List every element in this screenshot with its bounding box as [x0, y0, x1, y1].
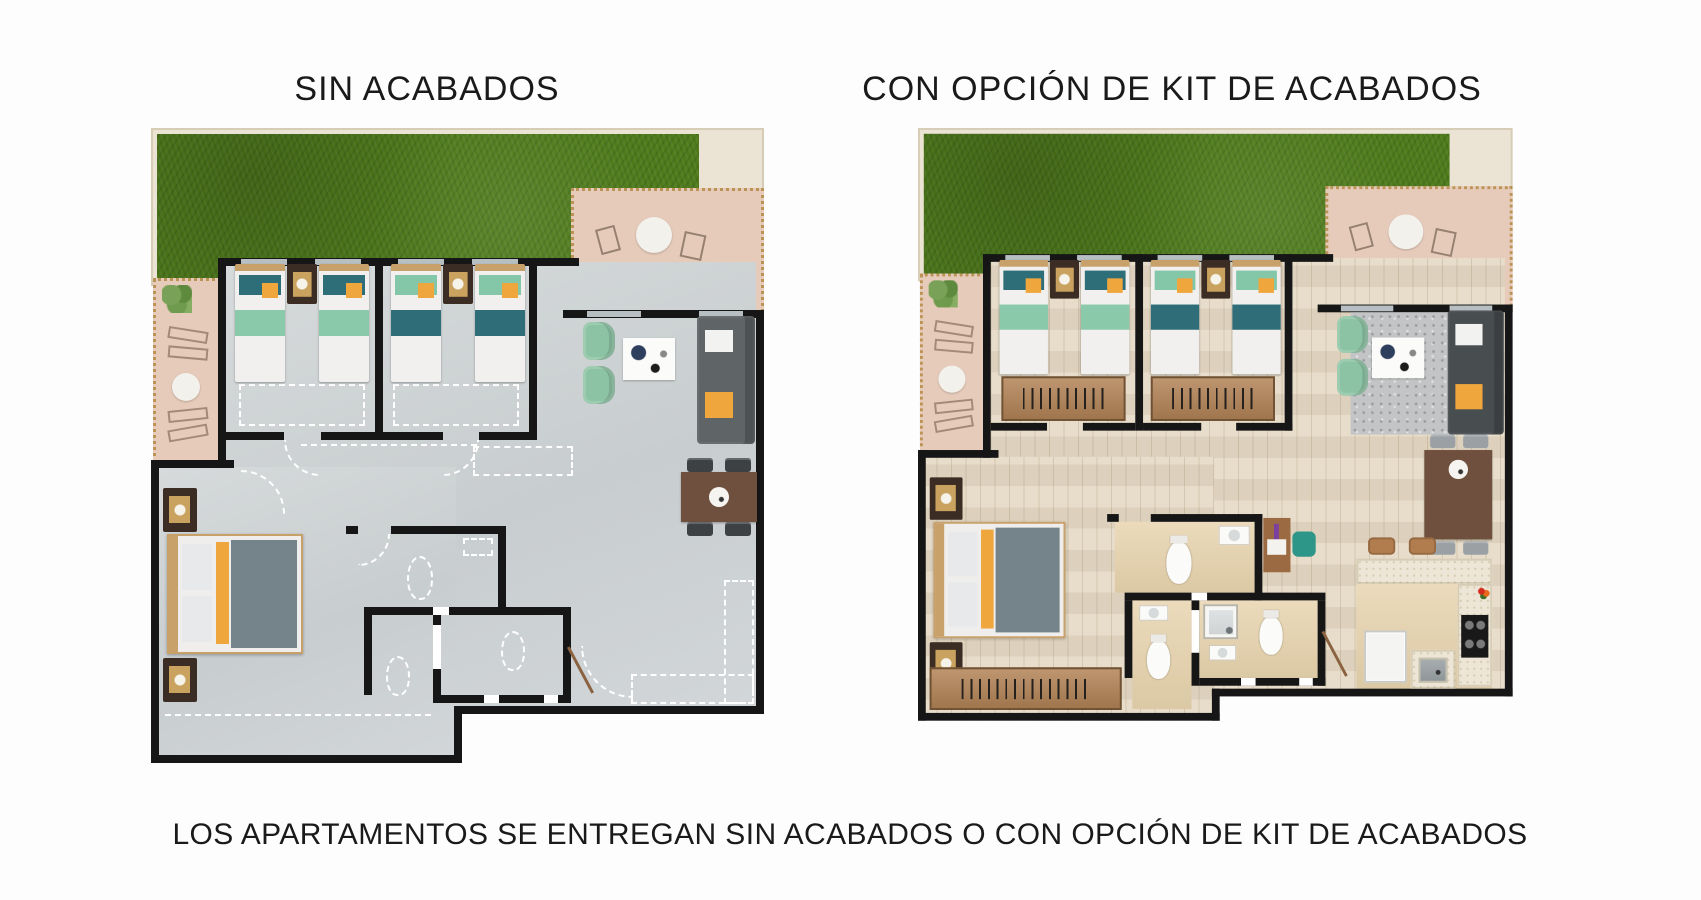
door-opening: [544, 695, 558, 703]
sofa: [1448, 310, 1504, 434]
armchair: [1337, 359, 1368, 396]
hallway-outline-dashed: [301, 444, 477, 446]
bar-stool: [1409, 537, 1436, 554]
toilet-outline-dashed: [386, 656, 410, 696]
door-opening: [1299, 678, 1313, 686]
wardrobe: [930, 667, 1122, 710]
wall-segment: [151, 755, 462, 763]
wall-segment: [918, 450, 999, 458]
door-opening: [1192, 610, 1200, 653]
stove: [1461, 615, 1488, 658]
wall-segment: [391, 526, 506, 534]
armchair: [583, 366, 615, 404]
double-bed: [934, 522, 1066, 638]
door-opening: [484, 695, 499, 703]
wall-segment: [1236, 423, 1292, 431]
nightstand: [163, 488, 197, 532]
kitchen-sink: [1419, 658, 1448, 683]
desk-chair: [1292, 532, 1315, 557]
floorplan-sin-acabados: [151, 128, 764, 764]
twin-bed: [999, 260, 1048, 374]
twin-bed: [475, 264, 525, 382]
desk: [1263, 518, 1290, 572]
toilet-outline-dashed: [501, 631, 525, 671]
wall-segment: [529, 258, 537, 440]
dining-chair: [687, 522, 713, 536]
toilet: [1166, 541, 1191, 584]
plate: [1449, 460, 1468, 479]
dining-chair: [1463, 435, 1488, 449]
nightstand: [443, 264, 473, 304]
patio-chair: [595, 225, 621, 255]
wall-segment: [498, 526, 506, 615]
wall-segment: [1151, 514, 1263, 522]
wall-segment: [454, 706, 462, 763]
wall-segment: [563, 615, 571, 703]
dining-chair: [687, 458, 713, 472]
twin-bed: [235, 264, 285, 382]
lounge-chair: [167, 424, 208, 443]
wall-segment: [226, 432, 284, 440]
plate: [709, 487, 729, 507]
dining-table: [681, 472, 757, 522]
lounge-chair: [167, 326, 208, 344]
wall-segment: [918, 713, 1220, 721]
wall-segment: [1318, 600, 1326, 685]
plant: [162, 285, 192, 313]
floorplan-kit-de-acabados: [918, 128, 1513, 745]
window: [1341, 306, 1393, 312]
patio-chair: [680, 231, 707, 261]
nightstand: [287, 264, 317, 304]
wardrobe: [1151, 376, 1275, 421]
wall-segment: [383, 432, 443, 440]
wall-segment: [375, 258, 383, 440]
dining-chair: [725, 522, 751, 536]
wall-segment: [1135, 254, 1143, 431]
sofa: [697, 316, 755, 444]
bathroom-sink: [1209, 645, 1236, 661]
armchair: [1337, 316, 1368, 353]
wardrobe: [1001, 376, 1125, 421]
patio-table: [172, 373, 200, 401]
wall-segment: [991, 423, 1047, 431]
wall-segment: [983, 254, 991, 458]
bathroom-sink: [1139, 605, 1168, 621]
closet-outline-dashed: [393, 384, 519, 426]
wall-segment: [151, 460, 234, 468]
flower-pot: [1477, 586, 1491, 600]
wall-segment: [1083, 423, 1135, 431]
wall-segment: [1285, 254, 1293, 431]
wall-segment: [454, 706, 764, 714]
nightstand: [1201, 260, 1230, 299]
double-bed: [167, 534, 303, 654]
window: [587, 311, 641, 317]
door-opening: [433, 625, 441, 669]
wall-segment: [756, 310, 764, 714]
patio-chair: [1431, 228, 1457, 257]
wall-segment: [346, 526, 358, 534]
twin-bed: [1151, 260, 1200, 374]
lounge-chair: [168, 345, 209, 360]
right-plan-title: CON OPCIÓN DE KIT DE ACABADOS: [862, 70, 1482, 109]
wall-segment: [1125, 593, 1326, 601]
bottom-caption: LOS APARTAMENTOS SE ENTREGAN SIN ACABADO…: [172, 818, 1527, 852]
sink-outline-dashed: [463, 538, 493, 556]
patio-table: [636, 217, 672, 253]
twin-bed: [391, 264, 441, 382]
fridge: [1364, 630, 1407, 682]
lounge-chair: [934, 339, 974, 354]
patio-chair: [1349, 222, 1374, 251]
wall-segment: [1255, 514, 1263, 600]
left-plan-title: SIN ACABADOS: [294, 70, 559, 109]
wall-segment: [364, 615, 372, 695]
dining-table: [1424, 450, 1492, 539]
nightstand: [1050, 260, 1079, 299]
wall-segment: [918, 450, 926, 721]
wall-segment: [151, 460, 159, 763]
closet-outline-dashed: [239, 384, 365, 426]
toilet-outline-dashed: [407, 556, 433, 600]
patio-table: [938, 366, 965, 393]
lounge-chair: [167, 407, 208, 423]
wall-segment: [364, 607, 571, 615]
wall-segment: [1212, 689, 1513, 697]
door-opening: [1241, 678, 1256, 686]
lounge-chair: [934, 320, 974, 338]
toilet: [1259, 616, 1282, 655]
patio-table: [1388, 214, 1423, 249]
wall-segment: [1505, 305, 1513, 697]
wall-segment: [1143, 423, 1201, 431]
twin-bed: [1081, 260, 1130, 374]
wall-segment: [218, 258, 226, 468]
wall-segment: [1107, 514, 1119, 522]
nightstand: [163, 658, 197, 702]
coffee-table: [1372, 338, 1424, 379]
dining-chair: [1430, 435, 1455, 449]
wardrobe-outline-dashed: [165, 714, 431, 716]
twin-bed: [1232, 260, 1281, 374]
furniture-outline-dashed: [473, 446, 573, 476]
lounge-chair: [934, 399, 974, 415]
dining-chair: [1463, 541, 1488, 555]
toilet: [1147, 640, 1170, 679]
dining-chair: [725, 458, 751, 472]
nightstand: [930, 477, 963, 520]
wall-segment: [321, 432, 375, 440]
terrace-left: [920, 274, 991, 454]
coffee-table: [623, 338, 675, 380]
door-opening: [433, 607, 449, 615]
plant: [929, 280, 958, 307]
terrace-left: [153, 278, 226, 464]
kitchen-counter-outline-dashed: [631, 674, 754, 704]
shower: [1203, 604, 1238, 639]
bar-stool: [1368, 537, 1395, 554]
twin-bed: [319, 264, 369, 382]
lounge-chair: [934, 415, 974, 433]
wall-segment: [1125, 600, 1133, 678]
wall-segment: [479, 432, 537, 440]
door-opening: [1192, 593, 1208, 601]
bathroom-sink: [1219, 526, 1250, 545]
armchair: [583, 322, 615, 360]
breakfast-bar-counter: [1356, 559, 1492, 584]
